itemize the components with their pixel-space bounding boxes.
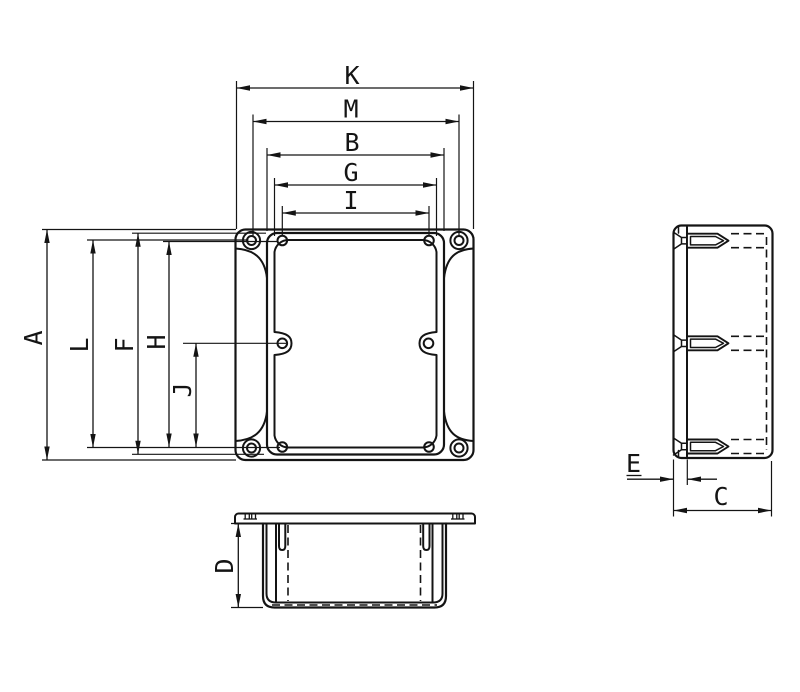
- dim-E: E: [626, 449, 717, 517]
- dim-label-F: F: [110, 337, 139, 352]
- dim-label-I: I: [343, 186, 358, 215]
- front-body-inner: [267, 524, 443, 603]
- side-view: E C: [626, 226, 773, 517]
- dim-label-G: G: [343, 158, 358, 187]
- dim-D: D: [210, 524, 263, 608]
- front-view: D: [210, 514, 475, 608]
- dim-label-J: J: [168, 382, 197, 397]
- side-bosses: [674, 232, 729, 455]
- dim-label-H: H: [142, 334, 171, 349]
- dim-label-M: M: [343, 95, 358, 124]
- front-flange: [235, 514, 475, 524]
- dim-label-A: A: [19, 330, 48, 345]
- flange-outline: [236, 230, 474, 461]
- boss-holes: [278, 236, 434, 452]
- dim-label-K: K: [344, 61, 359, 90]
- hidden-interior-lines: [731, 234, 767, 454]
- box-rim-outer: [267, 233, 444, 455]
- front-corner-posts: [272, 524, 437, 606]
- enclosure-dimension-drawing: K M B G I: [0, 0, 800, 692]
- dim-H: H: [142, 242, 278, 448]
- dim-J: J: [168, 343, 286, 447]
- dim-label-L: L: [65, 337, 94, 352]
- dim-C: C: [674, 461, 772, 517]
- dim-label-D: D: [210, 558, 239, 573]
- dim-label-C: C: [713, 482, 728, 511]
- technical-drawing-page: K M B G I: [0, 0, 800, 692]
- box-rim-inner: [275, 240, 437, 448]
- top-dimensions: K M B G I: [237, 61, 474, 237]
- dim-label-E: E: [626, 449, 641, 478]
- front-body-outer: [263, 524, 446, 608]
- left-dimensions: A L F H J: [19, 230, 286, 461]
- corner-webs: [236, 249, 474, 442]
- top-view: [236, 230, 474, 461]
- dim-label-B: B: [344, 128, 359, 157]
